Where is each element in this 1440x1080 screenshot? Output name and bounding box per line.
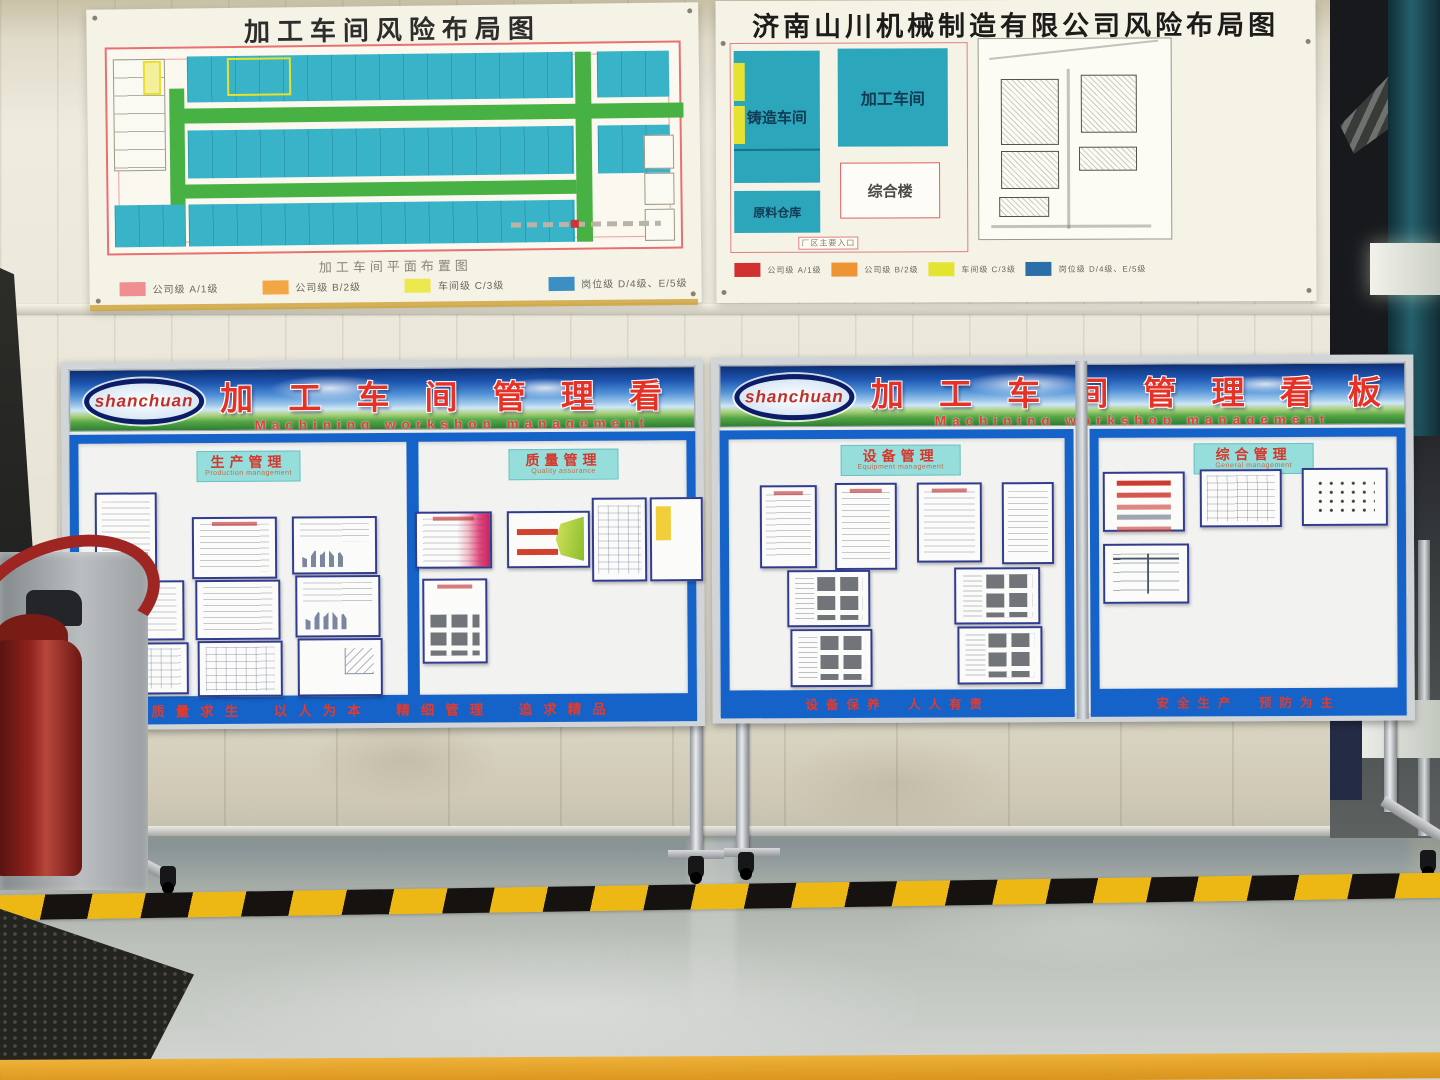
legend-swatch (831, 263, 857, 277)
legend-item: 公司级 A/1级 (120, 280, 219, 296)
whiteboard-panel-general: 综合管理 General management 安全生产 预防为主 (1090, 428, 1407, 717)
badge-sublabel: Quality assurance (514, 468, 614, 477)
legend-item: 车间级 C/3级 (928, 262, 1016, 276)
screw (1306, 288, 1311, 293)
caster-wheel (738, 852, 754, 876)
site-building (999, 197, 1049, 217)
legend-label: 公司级 B/2级 (295, 278, 361, 294)
plan-highlighted-cell (227, 57, 291, 96)
kanban-board-right: shanchuan 加 工 车 间 管 理 看 板 Machining work… (711, 354, 1415, 723)
badge-sublabel: Equipment management (846, 464, 956, 473)
site-building (1001, 79, 1059, 145)
document-bar-chart (295, 575, 380, 638)
board-slogan: 安全生产 预防为主 (1100, 692, 1398, 715)
entrance-label-box: 厂区主要入口 (798, 237, 858, 250)
legend-label: 岗位级 D/4级、E/5级 (581, 274, 688, 290)
board-slogan: 设备保养 人人有责 (730, 693, 1066, 716)
document (1002, 482, 1054, 564)
caster-wheel (688, 856, 704, 880)
screw (1306, 39, 1311, 44)
document-schedule-table (1200, 469, 1282, 527)
document (835, 483, 897, 570)
screw (721, 290, 726, 295)
board-title-cn: 加 工 车 间 管 理 看 板 (220, 369, 684, 420)
document-quality-slogan (507, 511, 590, 569)
stand-post (736, 714, 749, 856)
site-plan-drawing (978, 37, 1173, 240)
screw (96, 299, 101, 304)
site-building (1001, 151, 1059, 189)
legend-item: 公司级 A/1级 (734, 263, 821, 277)
legend: 公司级 A/1级 公司级 B/2级 车间级 C/3级 岗位级 D/4级、E/5级 (734, 262, 1146, 277)
document-quality-policy (415, 511, 492, 568)
frame-mullion (1075, 361, 1089, 719)
document-equipment-card (787, 570, 870, 627)
board-banner: shanchuan 加 工 车 间 管 理 看 板 Machining work… (719, 363, 1405, 428)
shanchuan-logo: shanchuan (84, 378, 204, 425)
block-label: 原料仓库 (753, 203, 801, 220)
document (192, 517, 277, 580)
site-building (1081, 75, 1137, 133)
kanban-board-left: shanchuan 加 工 车 间 管 理 看 板 Machining work… (61, 358, 705, 730)
site-road (1067, 69, 1071, 229)
legend-swatch (1026, 262, 1052, 276)
risk-layout-poster-company: 济南山川机械制造有限公司风险布局图 铸造车间 原料仓库 加工车间 综合楼 厂区主… (715, 0, 1316, 303)
silver-pole (1418, 540, 1430, 836)
legend-label: 车间级 C/3级 (961, 264, 1016, 275)
legend-swatch (928, 262, 954, 276)
document-equipment-card (957, 626, 1042, 684)
site-building (1079, 147, 1137, 171)
risk-layout-poster-workshop: 加工车间风险布局图 加工车间平面布置图 公司级 A/1级 公司级 B/2级 车间… (86, 2, 702, 309)
stand-post (690, 718, 703, 858)
block-label: 铸造车间 (747, 106, 807, 127)
legend-swatch (548, 276, 574, 290)
board-slogan: 质量求生 以人为本 精细管理 追求精品 (80, 697, 688, 723)
board-title-en: Machining workshop management (870, 412, 1394, 428)
section-badge-equipment: 设备管理 Equipment management (841, 444, 961, 476)
board-title-group: 加 工 车 间 管 理 看 板 Machining workshop manag… (870, 366, 1394, 428)
badge-label: 生产管理 (210, 454, 286, 470)
document-check-sheet (592, 497, 648, 581)
whiteboard-panel: 生产管理 Production management 质量管理 Quality … (69, 431, 697, 725)
logo-text: shanchuan (745, 387, 844, 407)
badge-label: 质量管理 (525, 452, 601, 468)
block-divider-line (734, 149, 820, 151)
legend-label: 公司级 A/1级 (153, 280, 219, 296)
badge-label: 综合管理 (1216, 446, 1292, 462)
document-trend-chart (298, 638, 383, 697)
shanchuan-logo: shanchuan (734, 374, 854, 421)
section-badge-production: 生产管理 Production management (196, 451, 300, 483)
plan-aisle-horizontal-1 (169, 102, 683, 123)
plan-machine-row-middle (188, 126, 575, 179)
workshop-photo-scene: 加工车间风险布局图 加工车间平面布置图 公司级 A/1级 公司级 B/2级 车间… (0, 0, 1440, 1080)
document-photo-sheet (422, 578, 488, 663)
plan-block-top-right (597, 51, 670, 98)
screw (687, 8, 692, 13)
badge-label: 设备管理 (863, 448, 939, 464)
legend-item: 公司级 B/2级 (262, 278, 361, 294)
yellow-risk-tab (734, 63, 745, 101)
fire-extinguisher (0, 640, 82, 876)
caster-wheel (1420, 850, 1436, 874)
badge-sublabel: Production management (202, 470, 296, 479)
screw (92, 16, 97, 21)
legend-item: 车间级 C/3级 (405, 277, 505, 293)
document-equipment-card (790, 629, 872, 687)
screw (691, 291, 696, 296)
site-road (991, 225, 1151, 229)
logo-text: shanchuan (95, 391, 194, 412)
wall-wainscot (0, 712, 1440, 830)
block-label: 综合楼 (868, 180, 913, 201)
legend-item: 岗位级 D/4级、E/5级 (1026, 262, 1147, 276)
plan-aisle-horizontal-2 (170, 180, 576, 199)
whiteboard-panel-equipment: 设备管理 Equipment management 设备保养 人人有责 (720, 429, 1075, 719)
legend: 公司级 A/1级 公司级 B/2级 车间级 C/3级 岗位级 D/4级、E/5级 (120, 274, 688, 296)
document-equipment-card (954, 567, 1040, 624)
plan-room-box (644, 173, 674, 205)
plan-room-box (644, 135, 674, 169)
screw (721, 41, 726, 46)
warehouse-block: 原料仓库 (734, 191, 820, 233)
yellow-risk-tab (734, 106, 745, 144)
bright-window (1370, 243, 1440, 295)
board-title-en: Machining workshop management (220, 415, 684, 432)
caster-wheel (160, 866, 176, 890)
document-certificate (1103, 471, 1185, 531)
plan-yellow-room (143, 61, 161, 95)
complex-building-block: 综合楼 (840, 162, 940, 218)
legend-label: 公司级 A/1级 (767, 264, 821, 275)
legend-label: 岗位级 D/4级、E/5级 (1059, 263, 1147, 274)
document-org-diagram (1103, 543, 1189, 603)
document-bar-chart (292, 516, 377, 575)
document (195, 580, 280, 641)
board-title-group: 加 工 车 间 管 理 看 板 Machining workshop manag… (220, 369, 684, 432)
block-label: 加工车间 (861, 85, 925, 109)
document (760, 485, 817, 568)
document (198, 641, 283, 698)
board-banner: shanchuan 加 工 车 间 管 理 看 板 Machining work… (69, 366, 695, 432)
legend-swatch (405, 278, 431, 292)
legend-swatch (120, 282, 146, 296)
board-title-cn: 加 工 车 间 管 理 看 板 (870, 366, 1394, 416)
legend-swatch (734, 263, 760, 277)
site-boundary (989, 40, 1158, 60)
document (917, 482, 982, 562)
legend-label: 车间级 C/3级 (438, 277, 505, 293)
casting-workshop-block: 铸造车间 (734, 51, 820, 183)
document-attendance-grid (1302, 468, 1388, 526)
legend-swatch (262, 280, 288, 294)
section-badge-quality: 质量管理 Quality assurance (508, 449, 618, 481)
plan-aisle-vertical-right (575, 52, 593, 242)
plan-block-bottom-left (115, 205, 186, 248)
legend-item: 公司级 B/2级 (831, 262, 918, 276)
legend-item: 岗位级 D/4级、E/5级 (548, 274, 688, 291)
document-quality-chart (650, 497, 704, 581)
legend-label: 公司级 B/2级 (864, 264, 918, 275)
machining-workshop-block: 加工车间 (838, 48, 948, 146)
